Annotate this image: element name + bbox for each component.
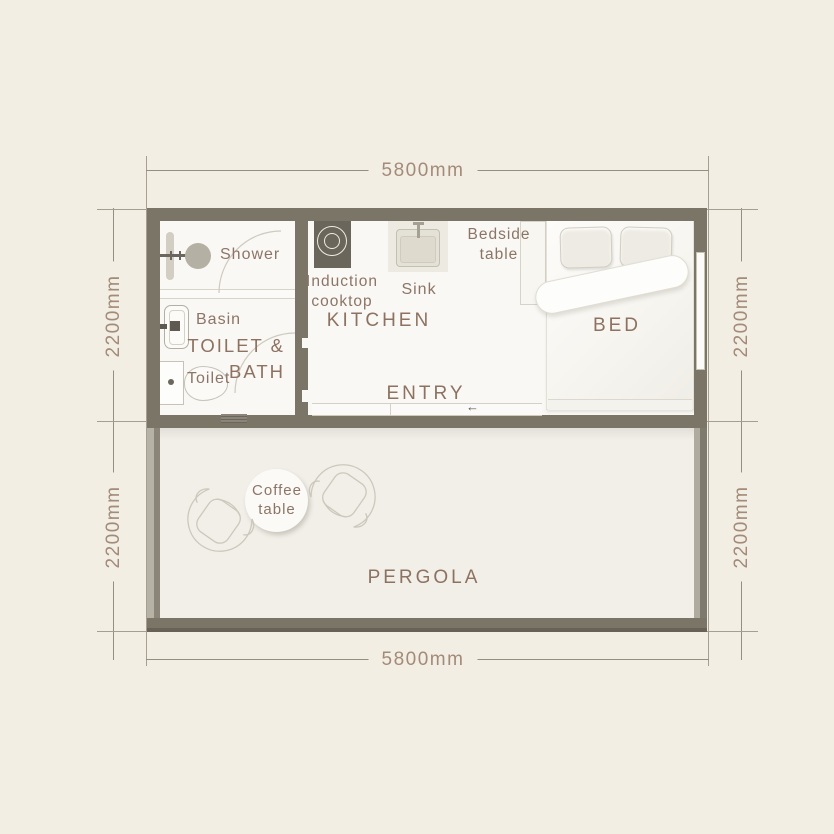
wall-top	[147, 208, 707, 221]
label-kitchen: KITCHEN	[327, 310, 431, 332]
label-entry: ENTRY	[386, 383, 465, 405]
extension-stub	[97, 631, 147, 632]
shower-arm-tick	[179, 251, 181, 260]
extension-stub	[707, 209, 758, 210]
faucet-icon	[417, 224, 420, 238]
door-jamb	[302, 390, 308, 402]
dimension-label-bottom: 5800mm	[369, 649, 478, 671]
window-icon	[696, 252, 705, 370]
label-induction-line1: Induction	[306, 272, 378, 292]
induction-cooktop-icon	[314, 220, 351, 268]
sink-counter	[388, 220, 448, 272]
door-seam	[390, 404, 391, 415]
extension-line-right	[708, 156, 709, 666]
label-coffee-line1: Coffee	[252, 482, 302, 501]
label-coffee-table: Coffee table	[252, 482, 302, 519]
entry-arrow-icon: ←	[466, 400, 479, 413]
toilet-button	[168, 379, 174, 385]
pillow-icon	[559, 226, 612, 268]
label-sink: Sink	[401, 280, 436, 300]
floor-plan: 5800mm 5800mm 2200mm 2200mm 2200mm 2200m…	[0, 0, 834, 834]
label-pergola: PERGOLA	[368, 567, 481, 589]
dimension-label-left-upper: 2200mm	[103, 262, 125, 371]
pergola-deck-edge	[147, 618, 707, 632]
basin-tap-icon	[170, 321, 180, 331]
dimension-label-left-lower: 2200mm	[103, 473, 125, 582]
door-jamb	[302, 338, 308, 348]
label-induction-line2: cooktop	[306, 292, 378, 312]
dimension-label-right-lower: 2200mm	[731, 473, 753, 582]
bed-foot-band	[548, 399, 692, 410]
label-shower: Shower	[220, 245, 280, 265]
step-vent-icon	[221, 414, 247, 423]
extension-stub	[97, 421, 147, 422]
extension-stub	[707, 631, 758, 632]
sink-basin	[400, 236, 436, 263]
label-bedside-table: Bedside table	[467, 225, 530, 264]
dimension-label-right-upper: 2200mm	[731, 262, 753, 371]
wall-left	[147, 208, 160, 428]
label-basin: Basin	[196, 310, 241, 330]
extension-stub	[97, 209, 147, 210]
label-bedside-line1: Bedside	[467, 225, 530, 245]
label-coffee-line2: table	[252, 501, 302, 520]
extension-stub	[707, 421, 758, 422]
dimension-label-top: 5800mm	[369, 160, 478, 182]
label-bed: BED	[593, 315, 641, 337]
pergola-edge-right	[694, 428, 707, 618]
label-bedside-line2: table	[467, 245, 530, 265]
shower-arm-tick	[170, 251, 172, 260]
wall-bath-kitchen	[295, 221, 308, 415]
label-induction-cooktop: Induction cooktop	[306, 272, 378, 311]
pergola-edge-left	[147, 428, 160, 618]
label-toilet-bath: TOILET & BATH	[175, 333, 285, 385]
label-toilet-bath-line1: TOILET &	[175, 333, 285, 359]
cooktop-ring-inner	[324, 233, 340, 249]
shower-head-icon	[185, 243, 211, 269]
label-toilet-bath-line2: BATH	[175, 359, 285, 385]
faucet-icon	[413, 222, 424, 225]
shower-partition	[160, 289, 295, 299]
